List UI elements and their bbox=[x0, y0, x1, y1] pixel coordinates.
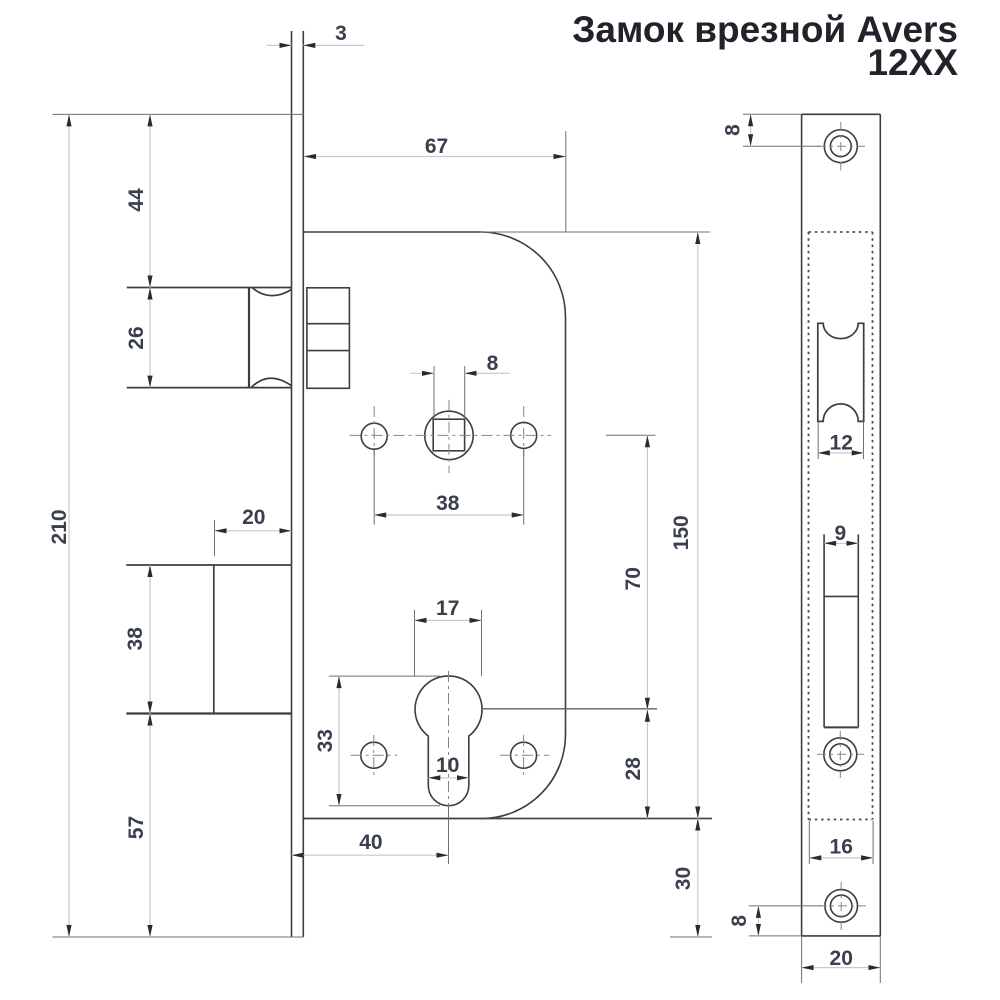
svg-text:20: 20 bbox=[830, 947, 853, 970]
svg-text:38: 38 bbox=[124, 627, 147, 651]
svg-text:8: 8 bbox=[722, 124, 745, 136]
svg-text:9: 9 bbox=[834, 522, 846, 545]
svg-text:17: 17 bbox=[436, 597, 459, 620]
svg-text:20: 20 bbox=[242, 506, 265, 529]
svg-text:38: 38 bbox=[436, 492, 460, 515]
svg-text:3: 3 bbox=[335, 22, 347, 45]
svg-text:10: 10 bbox=[436, 754, 459, 777]
svg-text:26: 26 bbox=[125, 326, 148, 349]
svg-text:33: 33 bbox=[314, 729, 337, 752]
svg-text:8: 8 bbox=[487, 352, 499, 375]
svg-text:28: 28 bbox=[622, 757, 645, 781]
svg-text:67: 67 bbox=[425, 135, 448, 158]
svg-text:40: 40 bbox=[359, 831, 382, 854]
svg-text:8: 8 bbox=[728, 915, 751, 927]
svg-text:12XX: 12XX bbox=[867, 42, 958, 83]
svg-text:210: 210 bbox=[48, 509, 71, 544]
svg-text:150: 150 bbox=[670, 515, 693, 550]
svg-text:44: 44 bbox=[125, 188, 148, 212]
svg-text:16: 16 bbox=[830, 836, 853, 859]
svg-text:30: 30 bbox=[672, 867, 695, 890]
svg-text:57: 57 bbox=[125, 816, 148, 839]
svg-text:12: 12 bbox=[830, 432, 853, 455]
svg-text:70: 70 bbox=[622, 567, 645, 590]
